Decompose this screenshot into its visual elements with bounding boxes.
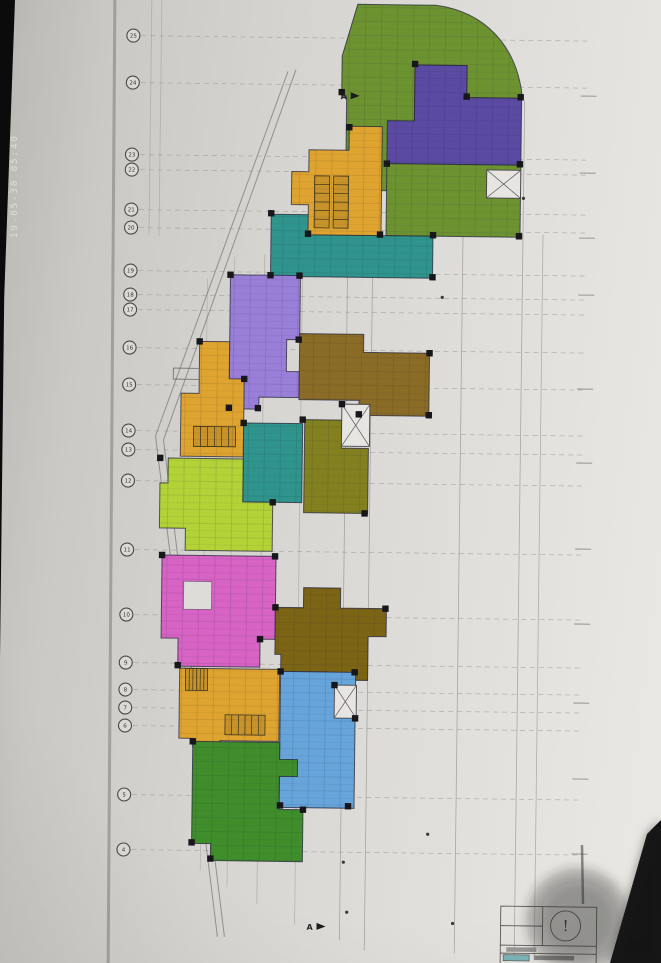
column-marker (240, 420, 246, 426)
grid-axis-label: 11 (124, 547, 131, 553)
grid-axis-label: 5 (122, 792, 126, 798)
grid-axis-label: 9 (124, 660, 128, 666)
section-marker-label: A (341, 92, 348, 101)
column-marker (412, 61, 418, 67)
column-marker (517, 94, 523, 100)
column-marker (257, 636, 263, 642)
ink-speck (522, 197, 525, 200)
floor-plan-drawing: 25242322212019181716151413121110987654AA… (0, 0, 661, 963)
column-marker (159, 552, 165, 558)
grid-axis-label: 22 (128, 168, 135, 174)
column-marker (157, 455, 163, 461)
column-marker (299, 416, 305, 422)
column-marker (300, 806, 306, 812)
grid-line-vertical (149, 0, 152, 236)
column-marker (277, 668, 283, 674)
column-marker (377, 231, 383, 237)
column-marker (305, 230, 311, 236)
grid-line-vertical (534, 235, 543, 961)
grid-axis-label: 13 (125, 447, 133, 453)
column-marker (426, 412, 432, 418)
ink-speck (426, 833, 429, 836)
grid-axis-label: 20 (128, 226, 136, 232)
ink-speck (345, 911, 348, 914)
grid-axis-label: 18 (127, 293, 135, 299)
column-marker (382, 605, 388, 611)
unit-teal-mid-walls (243, 423, 303, 503)
grid-axis-label: 19 (127, 269, 135, 275)
title-block-text-bar (506, 947, 536, 952)
unit-brown-dark-walls (275, 587, 387, 680)
column-marker (226, 405, 232, 411)
column-marker (346, 124, 352, 130)
column-marker (463, 93, 469, 99)
grid-axis-label: 4 (122, 847, 126, 853)
column-marker (268, 210, 274, 216)
photo-of-screen: 25242322212019181716151413121110987654AA… (0, 0, 661, 963)
column-marker (430, 232, 436, 238)
column-marker (339, 401, 345, 407)
ink-speck (342, 861, 345, 864)
grid-line-vertical (159, 0, 162, 236)
grid-axis-label: 14 (125, 428, 133, 434)
grid-line (138, 310, 586, 315)
column-marker (517, 161, 523, 167)
column-marker (255, 405, 261, 411)
section-marker-label: A (306, 923, 313, 932)
grid-axis-label: 23 (128, 153, 136, 159)
round-shadow-core (541, 883, 616, 958)
unit-brown-mid-walls (299, 334, 430, 417)
column-marker (384, 160, 390, 166)
column-marker (207, 855, 213, 861)
ink-speck (451, 922, 454, 925)
column-marker (361, 510, 367, 516)
unit-magenta-walls (161, 555, 276, 667)
grid-axis-label: 24 (129, 81, 137, 87)
column-marker (345, 803, 351, 809)
grid-axis-label: 12 (124, 478, 131, 484)
grid-axis-label: 6 (123, 723, 127, 729)
timestamp-overlay: 19-05-30 05:40 (10, 134, 20, 238)
grid-axis-label: 7 (123, 705, 127, 711)
grid-axis-label: 10 (123, 612, 131, 618)
grid-line (131, 850, 579, 855)
section-marker-arrow (317, 923, 326, 930)
column-marker (277, 802, 283, 808)
grid-axis-label: 8 (124, 687, 128, 693)
grid-axis-label: 15 (126, 382, 134, 388)
column-marker (190, 738, 196, 744)
column-marker (351, 669, 357, 675)
grid-axis-label: 16 (126, 345, 134, 351)
unit-notch (183, 581, 211, 609)
column-marker (331, 682, 337, 688)
column-marker (356, 411, 362, 417)
column-marker (267, 272, 273, 278)
title-block-accent-cell (503, 955, 529, 961)
column-marker (188, 839, 194, 845)
column-marker (295, 336, 301, 342)
column-marker (272, 553, 278, 559)
column-marker (241, 376, 247, 382)
column-marker (516, 233, 522, 239)
column-marker (269, 499, 275, 505)
column-marker (429, 274, 435, 280)
column-marker (174, 662, 180, 668)
column-marker (227, 272, 233, 278)
column-marker (196, 338, 202, 344)
grid-axis-label: 25 (130, 34, 138, 40)
column-marker (352, 715, 358, 721)
ink-speck (441, 296, 444, 299)
column-marker (272, 604, 278, 610)
column-marker (296, 272, 302, 278)
column-marker (426, 350, 432, 356)
grid-axis-label: 17 (127, 308, 135, 314)
grid-axis-label: 21 (128, 208, 135, 214)
